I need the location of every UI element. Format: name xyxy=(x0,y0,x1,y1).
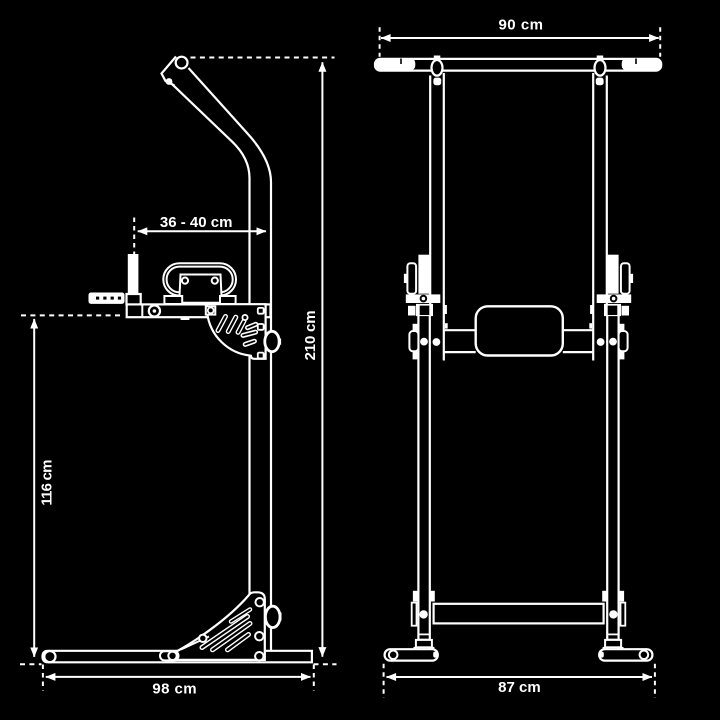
svg-text:90 cm: 90 cm xyxy=(498,17,543,34)
svg-text:210 cm: 210 cm xyxy=(302,311,319,361)
svg-text:87 cm: 87 cm xyxy=(498,679,541,696)
svg-text:116 cm: 116 cm xyxy=(38,460,55,506)
svg-text:36 - 40 cm: 36 - 40 cm xyxy=(160,214,233,231)
svg-text:98 cm: 98 cm xyxy=(152,681,197,698)
